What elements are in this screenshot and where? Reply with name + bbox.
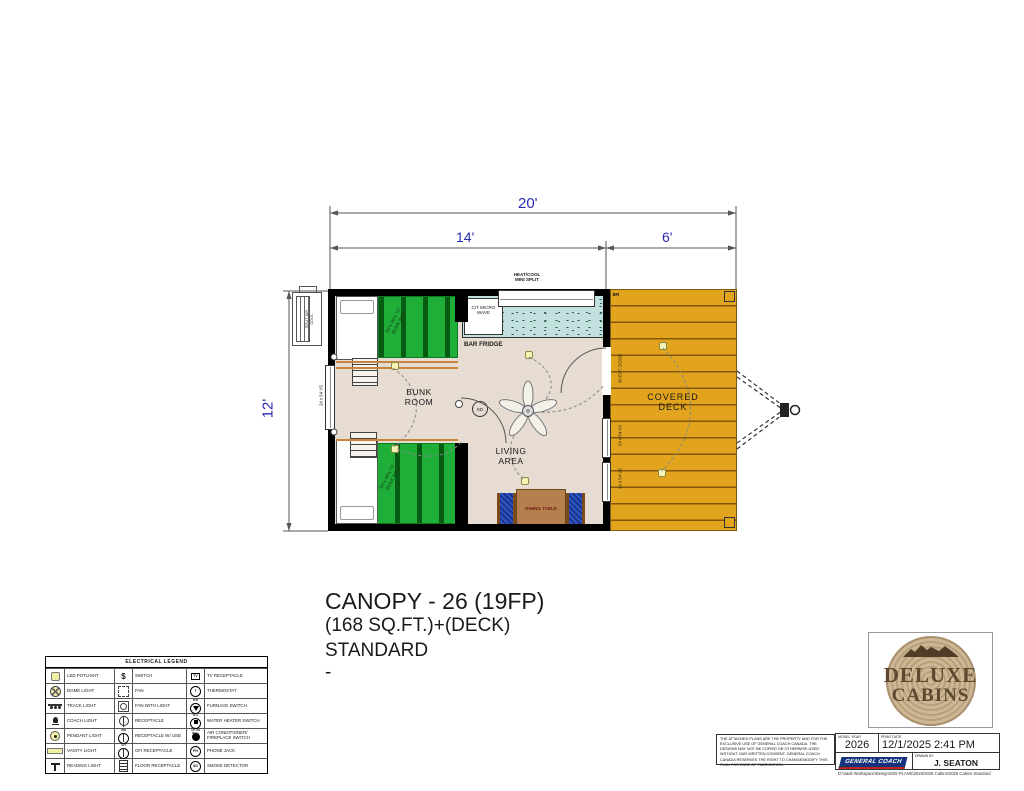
pendant-light-cell (46, 728, 64, 743)
split-ac-label: SPLIT AIR COOL (304, 306, 314, 332)
legend-label: PENDANT LIGHT (64, 728, 114, 743)
fan-icon (115, 685, 132, 698)
ac-glyph: A/C ON WALL (187, 729, 204, 735)
sheet-subtitle-area: (168 SQ.FT.)+(DECK) (325, 615, 510, 637)
drawn-by-value: J. SEATON (913, 758, 999, 768)
smoke-detector-icon: SD (187, 760, 204, 773)
window-right-1-label: 24 x 54 VS (618, 414, 623, 458)
dimension-arrows (286, 210, 736, 531)
logo-word-cabins: CABINS (869, 685, 992, 707)
living-area-label: LIVING AREA (487, 447, 535, 467)
deluxe-cabins-logo: DELUXE CABINS (868, 632, 993, 728)
file-path: D:\Vault Workspace\Designs\2D-PLANS\2026… (838, 771, 1008, 776)
legend-label: FURNACE SWITCH (204, 698, 267, 713)
receptacle-icon (115, 715, 132, 728)
thermostat-icon: T (187, 685, 204, 698)
legend-title: ELECTRICAL LEGEND (46, 657, 267, 668)
switch-glyph: $ (121, 672, 125, 681)
legend-label: WATER HEATER SWITCH (204, 713, 267, 728)
led-potlight-icon (47, 670, 64, 683)
legend-label: THERMOSTAT (204, 683, 267, 698)
usb-receptacle-icon: USB (115, 730, 132, 743)
vanity-light-icon (47, 745, 64, 758)
coach-light-cell (46, 713, 64, 728)
led-potlight-cell (46, 668, 64, 683)
floor-receptacle-cell (114, 758, 132, 773)
legend-grid: LED POTLIGHT $ SWITCH TV TV RECEPTACLE D… (46, 668, 267, 773)
phone-jack-cell: PH (186, 743, 204, 758)
legend-label: FLOOR RECEPTACLE (132, 758, 186, 773)
wiring-curves (393, 348, 691, 479)
switch-icon: $ (115, 670, 132, 683)
dome-light-cell (46, 683, 64, 698)
trailer-hitch-frame (737, 371, 782, 449)
sheet-subtitle-spec: STANDARD (325, 640, 428, 662)
legend-label: SMOKE DETECTOR (204, 758, 267, 773)
legend-label: LED POTLIGHT (64, 668, 114, 683)
model-year-cell: MODEL YEAR 2026 (835, 733, 879, 753)
legend-label: RECEPTACLE (132, 713, 186, 728)
gfi-glyph: GFI (115, 744, 132, 747)
thermostat-cell: T (186, 683, 204, 698)
dim-cabin: 14' (456, 229, 474, 245)
legend-label: FAN (132, 683, 186, 698)
coach-light-icon (47, 715, 64, 728)
tv-receptacle-cell: TV (186, 668, 204, 683)
dim-total: 20' (518, 195, 538, 212)
model-year-value: 2026 (836, 739, 878, 751)
legend-label: GFI RECEPTACLE (132, 743, 186, 758)
phone-jack-icon: PH (187, 745, 204, 758)
tv-receptacle-icon: TV (187, 670, 204, 683)
covered-deck-label: COVERED DECK (643, 392, 703, 413)
switch-cell: $ (114, 668, 132, 683)
phone-glyph: PH (190, 746, 201, 757)
gfi-receptacle-icon: GFI (115, 745, 132, 758)
furnace-switch-icon: FUR (187, 700, 204, 713)
pendant-light-icon (47, 730, 64, 743)
thermostat-glyph: T (190, 686, 201, 697)
legend-label: READING LIGHT (64, 758, 114, 773)
usb-receptacle-cell: USB (114, 728, 132, 743)
legend-label: RECEPTACLE W/ USB (132, 728, 186, 743)
water-heater-cell: W.H. (186, 713, 204, 728)
legend-label: TRACK LIGHT (64, 698, 114, 713)
ext-door-label: 36 EXT. DOOR (618, 347, 623, 391)
plan-sheet: C/T MICRO WAVE DINING TABLE SD (0, 0, 1024, 791)
water-heater-switch-icon: W.H. (187, 715, 204, 728)
legend-label: COACH LIGHT (64, 713, 114, 728)
disclaimer-box: THE ATTACHED PLANS ARE THE PROPERTY AND … (716, 734, 835, 765)
print-date-cell: PRINT DATE 12/1/2025 2:41 PM (878, 733, 1000, 753)
fan-with-light-icon (115, 700, 132, 713)
sheet-title: CANOPY - 26 (19FP) (325, 588, 544, 615)
legend-label: FAN WITH LIGHT (132, 698, 186, 713)
br-label: BR (609, 292, 623, 297)
legend-label: TV RECEPTACLE (204, 668, 267, 683)
reading-light-icon (47, 760, 64, 773)
cabin-silhouette-icon (901, 641, 961, 659)
bar-fridge-label: BAR FRIDGE (464, 341, 536, 348)
receptacle-cell (114, 713, 132, 728)
sheet-subtitle-dash: - (325, 662, 331, 684)
door-swing-arcs (461, 348, 606, 443)
wh-glyph: W.H. (187, 714, 204, 717)
fan-cell (114, 683, 132, 698)
track-light-cell (46, 698, 64, 713)
gfi-receptacle-cell: GFI (114, 743, 132, 758)
drawn-by-cell: DRAWN BY J. SEATON (912, 752, 1000, 770)
bunk-room-label: BUNK ROOM (396, 388, 442, 408)
legend-label: PHONE JACK (204, 743, 267, 758)
vanity-light-cell (46, 743, 64, 758)
ac-switch-cell: A/C ON WALL (186, 728, 204, 743)
legend-label: DOME LIGHT (64, 683, 114, 698)
dimension-lines (283, 206, 736, 531)
dim-deck: 6' (662, 229, 672, 245)
brand-sub: CABINS (838, 765, 849, 769)
furnace-glyph: FUR (187, 699, 204, 702)
heat-cool-line2: MINI SPLIT (492, 277, 562, 282)
brand-name: GENERAL COACH (844, 759, 902, 765)
track-light-icon (47, 700, 64, 713)
print-date-value: 12/1/2025 2:41 PM (879, 739, 999, 751)
trailer-coupler (780, 403, 800, 417)
dim-side: 12' (259, 399, 276, 419)
tv-glyph: TV (191, 673, 200, 680)
ceiling-fan (498, 381, 558, 438)
window-right-2-label: 24 x 54 VS (618, 457, 623, 501)
smoke-glyph: SD (190, 761, 201, 772)
ac-fireplace-switch-icon: A/C ON WALL (187, 730, 204, 743)
legend-label: AIR CONDITIONER/ FIREPLACE SWITCH (204, 728, 267, 743)
fan-with-light-cell (114, 698, 132, 713)
usb-glyph: USB (115, 729, 132, 732)
heat-cool-label: HEAT/COOL MINI SPLIT (492, 272, 562, 283)
smoke-detector-cell: SD (186, 758, 204, 773)
window-left-label: 24 x 54 VS (319, 374, 324, 418)
legend-label: SWITCH (132, 668, 186, 683)
legend-label: VANITY LIGHT (64, 743, 114, 758)
furnace-switch-cell: FUR (186, 698, 204, 713)
reading-light-cell (46, 758, 64, 773)
electrical-legend: ELECTRICAL LEGEND LED POTLIGHT $ SWITCH … (45, 656, 268, 774)
dome-light-icon (47, 685, 64, 698)
brand-logo-cell: GENERAL COACH CABINS (835, 752, 913, 770)
floor-receptacle-icon (115, 760, 132, 773)
